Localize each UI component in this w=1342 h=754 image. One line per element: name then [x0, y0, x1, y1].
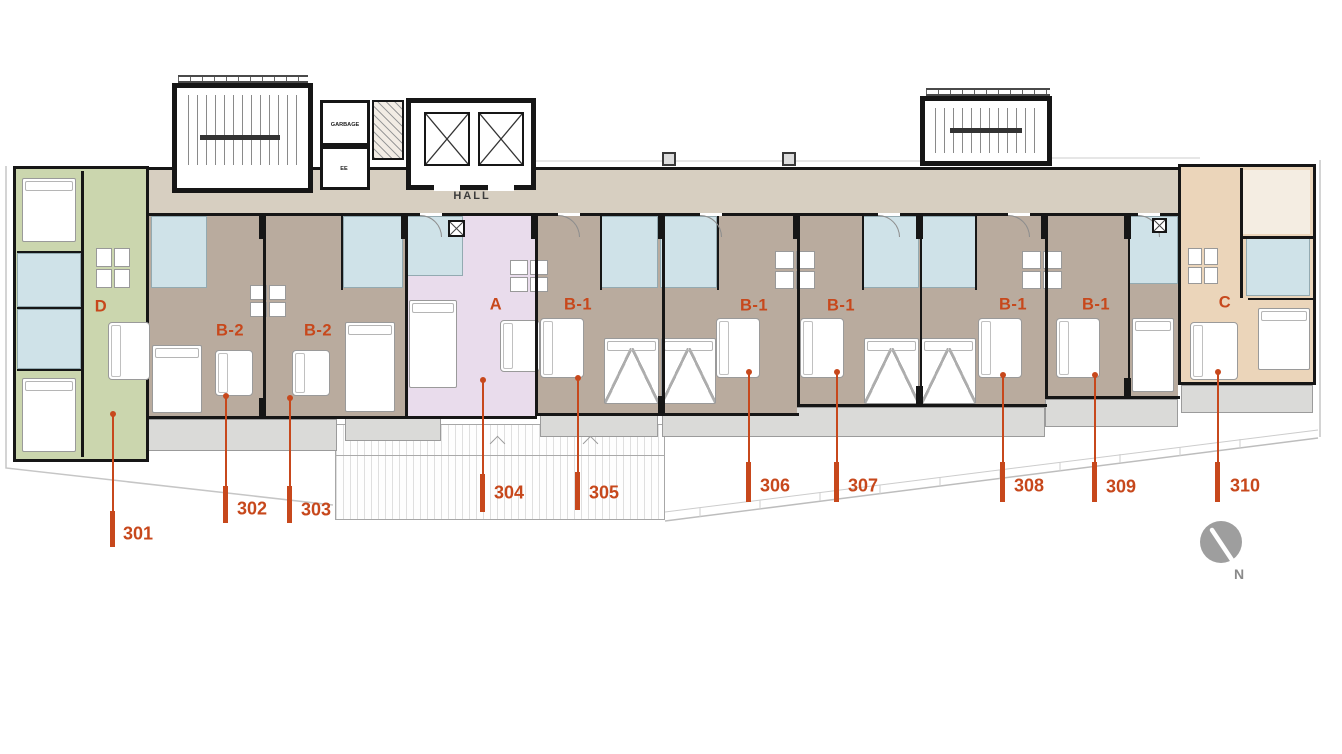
elevator-shaft [478, 112, 524, 166]
unit-number-label: 305 [589, 483, 619, 504]
units-bottom-wall [535, 413, 799, 416]
unit-type-label: A [490, 296, 502, 315]
leader-line [289, 398, 291, 489]
bed [409, 300, 457, 388]
unit-type-label: B-2 [304, 322, 332, 341]
partition-wall [862, 213, 864, 290]
partition-wall [975, 213, 977, 290]
leader-line [1000, 462, 1005, 502]
balcony [1181, 385, 1313, 413]
bathroom [17, 309, 81, 369]
north-label: N [1234, 566, 1244, 582]
party-wall [1128, 213, 1130, 396]
unit-number-label: 303 [301, 500, 331, 521]
leader-line [746, 462, 751, 502]
bathroom [600, 216, 658, 288]
interior-wall [17, 369, 81, 371]
unit-type-label: B-2 [216, 322, 244, 341]
unit-type-label: C [1219, 294, 1231, 313]
garbage-label: GARBAGE [331, 121, 360, 127]
column [658, 213, 665, 239]
sofa [716, 318, 760, 378]
leader-line [1217, 372, 1219, 465]
electrical-label: EE [340, 165, 347, 171]
leader-line [1215, 462, 1220, 502]
column [531, 213, 538, 239]
party-wall [662, 213, 665, 416]
interior-wall [1240, 236, 1316, 239]
duct-shaft [372, 100, 404, 160]
leader-line [834, 462, 839, 502]
sofa [1056, 318, 1100, 378]
bed [1258, 308, 1310, 370]
sofa [108, 322, 150, 380]
unit-number-label: 302 [237, 499, 267, 520]
compass-needle [1195, 515, 1255, 575]
bed [152, 345, 202, 413]
hall-label: HALL [453, 190, 490, 202]
interior-wall [81, 171, 84, 457]
unit-type-label: B-1 [999, 296, 1027, 315]
sofa [500, 320, 540, 372]
floor-plan: GARBAGE EE HALL D B-2 B-2 A B-1 B-1 B-1 … [0, 0, 1342, 754]
stair-roof [178, 75, 308, 83]
unit-type-label: B-1 [564, 296, 592, 315]
bed [22, 178, 76, 242]
column [1041, 213, 1048, 239]
leader-line [223, 486, 228, 523]
dining-table [1188, 248, 1218, 284]
deck-tier-line [335, 455, 665, 456]
party-wall [797, 213, 800, 406]
party-wall [535, 213, 538, 416]
leader-line [748, 372, 750, 465]
vent-box [662, 152, 676, 166]
interior-wall [17, 307, 81, 309]
unit-number-label: 301 [123, 524, 153, 545]
unit-type-label: D [95, 298, 107, 317]
double-bed [864, 338, 919, 404]
elevator-door-gap [488, 184, 514, 191]
leader-line [110, 511, 115, 547]
interior-wall [17, 251, 81, 253]
sofa [1190, 322, 1238, 380]
party-wall [920, 213, 922, 404]
double-bed [921, 338, 976, 404]
leader-line [112, 414, 114, 514]
balcony [1045, 399, 1178, 427]
column [1124, 213, 1131, 239]
unit-type-label: B-1 [827, 297, 855, 316]
unit-number-label: 304 [494, 483, 524, 504]
double-bed [604, 338, 659, 404]
column [1124, 378, 1131, 396]
unit-number-label: 307 [848, 476, 878, 497]
column [793, 213, 800, 239]
leader-line [225, 396, 227, 489]
leader-line [287, 486, 292, 523]
interior-wall [1240, 168, 1243, 298]
units-bottom-wall [797, 404, 1047, 407]
dining-table [1022, 251, 1062, 289]
sofa [215, 350, 253, 396]
party-wall [263, 213, 266, 418]
column [401, 213, 408, 239]
sofa [292, 350, 330, 396]
leader-line [1094, 375, 1096, 465]
unit-type-label: B-1 [740, 297, 768, 316]
bathroom [151, 216, 207, 288]
column [259, 398, 266, 416]
stair-landing-rail [200, 135, 280, 140]
dining-table [510, 260, 548, 292]
stair-landing-rail [950, 128, 1022, 133]
sofa [978, 318, 1022, 378]
partition-wall [341, 213, 343, 290]
partition-wall [600, 213, 602, 290]
closet-room [1240, 170, 1310, 234]
bed [345, 322, 395, 412]
dining-table [96, 248, 130, 288]
interior-wall [1248, 298, 1314, 300]
unit-number-label: 306 [760, 476, 790, 497]
bathroom [921, 216, 977, 288]
elevator-shaft [424, 112, 470, 166]
units-bottom-wall [1045, 396, 1180, 399]
shaft-box [1152, 218, 1167, 233]
column [916, 386, 923, 404]
double-bed [661, 338, 716, 404]
unit-number-label: 309 [1106, 477, 1136, 498]
leader-line [480, 474, 485, 512]
party-wall [1045, 213, 1048, 399]
dining-table [775, 251, 815, 289]
leader-line [1002, 375, 1004, 465]
bed [1132, 318, 1174, 392]
leader-line [575, 472, 580, 510]
party-wall [405, 213, 408, 418]
leader-line [482, 380, 484, 477]
bathroom [1246, 238, 1310, 296]
stair-roof [926, 88, 1050, 96]
unit-number-label: 310 [1230, 476, 1260, 497]
balcony [147, 419, 337, 451]
bathroom [17, 253, 81, 307]
leader-line [836, 372, 838, 465]
column [259, 213, 266, 239]
vent-box [782, 152, 796, 166]
unit-number-label: 308 [1014, 476, 1044, 497]
leader-line [577, 378, 579, 475]
stair-treads [188, 95, 298, 165]
shaft-box [448, 220, 465, 237]
bathroom [343, 216, 403, 288]
sofa [540, 318, 584, 378]
leader-line [1092, 462, 1097, 502]
units-bottom-wall [147, 416, 537, 419]
bed [22, 378, 76, 452]
column [916, 213, 923, 239]
dining-table [250, 285, 286, 317]
column [658, 396, 665, 414]
unit-type-label: B-1 [1082, 296, 1110, 315]
